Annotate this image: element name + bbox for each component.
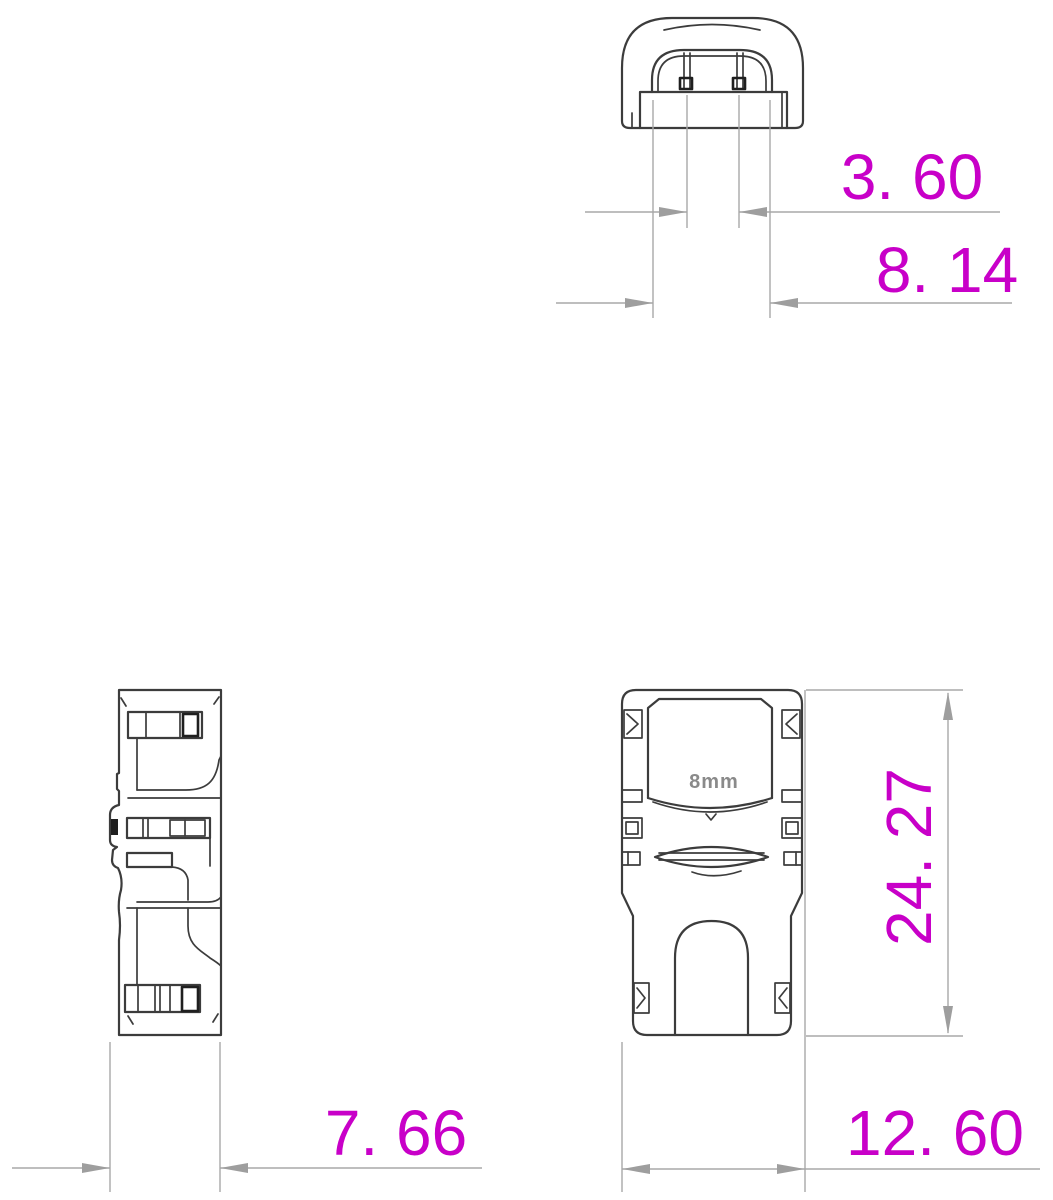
arrow-24-27-bottom xyxy=(943,1006,953,1034)
side-middle-clip-dividers xyxy=(143,818,148,838)
side-top-clip-divider xyxy=(146,712,180,738)
front-lens xyxy=(655,847,768,867)
front-cap-notch xyxy=(706,814,716,820)
side-top-clip-insert xyxy=(183,714,198,736)
side-bottom-clip-insert xyxy=(182,987,198,1011)
top-view-base-rect xyxy=(640,92,787,128)
side-latch-mark xyxy=(111,819,118,835)
front-lens-lines xyxy=(659,853,764,860)
technical-drawing-page: 8mm xyxy=(0,0,1053,1200)
bracket-top-right-wedge xyxy=(786,714,797,734)
dim-text-24-27: 24. 27 xyxy=(873,768,945,946)
arrow-8-14-left xyxy=(625,298,653,308)
tab-left-1 xyxy=(622,790,642,802)
front-lens-underarc xyxy=(692,871,741,876)
bracket-bottom-left xyxy=(634,983,649,1013)
tab-right-1 xyxy=(782,790,802,802)
arrow-24-27-top xyxy=(943,692,953,720)
arrow-7-66-left xyxy=(82,1163,110,1173)
tab-right-2-inner xyxy=(786,822,798,834)
front-corner-brackets xyxy=(624,710,800,1013)
side-ledge-upper xyxy=(137,897,221,902)
dim-text-12-60: 12. 60 xyxy=(846,1097,1024,1169)
drawing-canvas: 8mm xyxy=(0,0,1053,1200)
front-arch xyxy=(675,921,748,1035)
side-top-clip xyxy=(128,712,202,738)
dim-text-8-14: 8. 14 xyxy=(876,234,1018,306)
side-lower-curve xyxy=(172,867,188,900)
arrow-8-14-right xyxy=(770,298,798,308)
tab-right-3 xyxy=(784,852,802,865)
top-view xyxy=(622,18,803,128)
bracket-bottom-left-wedge xyxy=(637,988,645,1008)
dimension-annotations: 3. 60 8. 14 7. 66 24. 27 12. 60 xyxy=(12,95,1040,1192)
arrow-7-66-right xyxy=(220,1163,248,1173)
top-view-inner-dome-wall xyxy=(658,56,766,92)
pin-right xyxy=(737,53,743,88)
ext-lines-12-60 xyxy=(622,690,805,1192)
tab-right-2 xyxy=(782,818,802,838)
pin-left xyxy=(684,53,690,88)
tab-left-2 xyxy=(622,818,642,838)
side-middle-clip xyxy=(127,818,210,838)
cap-size-label: 8mm xyxy=(689,771,739,793)
side-bottom-clip xyxy=(125,985,200,1012)
side-corner-ticks xyxy=(121,697,219,1024)
tab-left-2-inner xyxy=(626,822,638,834)
top-view-outline xyxy=(622,18,803,128)
ext-lines-7-66 xyxy=(110,1042,220,1192)
side-view xyxy=(110,690,221,1035)
side-step-arc-upper xyxy=(137,756,221,790)
bracket-bottom-right xyxy=(775,983,790,1013)
side-big-arc xyxy=(188,908,221,966)
bracket-bottom-right-wedge xyxy=(779,988,787,1008)
side-middle-clip-insert xyxy=(170,820,205,836)
bracket-top-left-wedge xyxy=(627,714,638,734)
arrow-3-60-left xyxy=(659,207,687,217)
dim-text-3-60: 3. 60 xyxy=(841,141,983,213)
arrow-3-60-right xyxy=(739,207,767,217)
side-bottom-clip-dividers xyxy=(138,985,170,1012)
arrow-12-60-right xyxy=(777,1164,805,1174)
side-lower-tab xyxy=(127,853,172,867)
tab-left-3 xyxy=(622,852,640,865)
arrow-12-60-left xyxy=(622,1164,650,1174)
top-view-top-chord xyxy=(664,25,760,31)
front-view: 8mm xyxy=(622,690,802,1035)
dim-text-7-66: 7. 66 xyxy=(325,1097,467,1169)
